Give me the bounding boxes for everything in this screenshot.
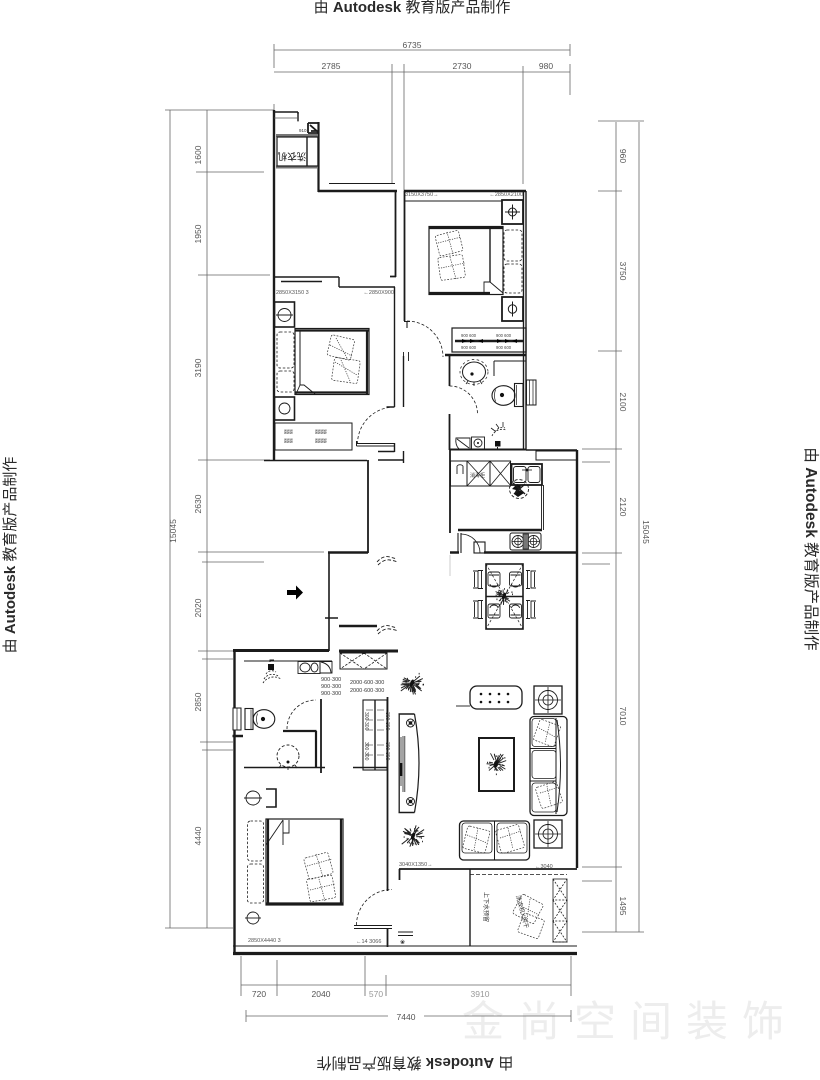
svg-text:ʬʬʬ: ʬʬʬ — [284, 439, 293, 445]
svg-text:3190: 3190 — [193, 358, 203, 377]
svg-text:金尚空间装饰: 金尚空间装饰 — [462, 998, 798, 1045]
svg-text:2000·600·300: 2000·600·300 — [350, 688, 384, 694]
svg-text:由 Autodesk 教育版产品制作: 由 Autodesk 教育版产品制作 — [317, 1054, 514, 1071]
svg-text:2785: 2785 — [322, 61, 341, 71]
svg-text:ʬʬʬʬ: ʬʬʬʬ — [315, 439, 327, 445]
svg-text:2020: 2020 — [193, 598, 203, 617]
svg-text:900 600: 900 600 — [461, 345, 477, 350]
svg-text:←3040: ←3040 — [535, 864, 553, 870]
svg-text:900 600: 900 600 — [461, 333, 477, 338]
svg-text:2730: 2730 — [453, 61, 472, 71]
svg-text:洗衣机: 洗衣机 — [277, 150, 306, 162]
svg-text:3750: 3750 — [618, 262, 628, 281]
svg-text:3150X3750→: 3150X3750→ — [405, 192, 439, 198]
svg-text:900·300: 900·300 — [321, 684, 341, 690]
svg-text:7440: 7440 — [397, 1012, 416, 1022]
svg-text:980: 980 — [539, 61, 553, 71]
svg-text:←2850X900: ←2850X900 — [363, 290, 394, 296]
svg-text:300·300: 300·300 — [384, 742, 390, 761]
svg-text:2630: 2630 — [193, 494, 203, 513]
svg-text:300·300: 300·300 — [363, 712, 369, 731]
svg-text:910: 910 — [299, 128, 307, 133]
svg-text:720: 720 — [252, 989, 266, 999]
svg-text:7010: 7010 — [618, 707, 628, 726]
svg-text:6735: 6735 — [403, 40, 422, 50]
svg-text:900 600: 900 600 — [496, 345, 512, 350]
svg-text:4440: 4440 — [193, 826, 203, 845]
svg-text:3910: 3910 — [471, 989, 490, 999]
svg-text:15045: 15045 — [168, 519, 178, 543]
svg-text:570: 570 — [369, 989, 383, 999]
svg-text:15045: 15045 — [641, 520, 651, 544]
svg-text:900 600: 900 600 — [496, 333, 512, 338]
svg-text:由 Autodesk 教育版产品制作: 由 Autodesk 教育版产品制作 — [2, 457, 19, 654]
svg-text:900·300: 900·300 — [321, 691, 341, 697]
svg-text:2100: 2100 — [618, 393, 628, 412]
svg-text:❀: ❀ — [400, 939, 405, 946]
svg-text:1950: 1950 — [193, 224, 203, 243]
svg-text:由 Autodesk 教育版产品制作: 由 Autodesk 教育版产品制作 — [802, 447, 820, 650]
svg-text:2850X3150 3: 2850X3150 3 — [276, 290, 309, 296]
svg-text:2120: 2120 — [618, 498, 628, 517]
svg-text:2850X4440 3: 2850X4440 3 — [248, 938, 281, 944]
svg-text:960: 960 — [618, 149, 628, 163]
svg-text:2040: 2040 — [312, 989, 331, 999]
svg-text:3040X1350→: 3040X1350→ — [399, 862, 433, 868]
svg-text:由 Autodesk 教育版产品制作: 由 Autodesk 教育版产品制作 — [314, 0, 511, 16]
svg-text:1600: 1600 — [193, 145, 203, 164]
svg-text:2850: 2850 — [193, 692, 203, 711]
svg-text:1495: 1495 — [618, 897, 628, 916]
svg-text:300·300: 300·300 — [384, 712, 390, 731]
svg-text:消毒柜: 消毒柜 — [470, 472, 485, 479]
svg-text:2000·600·300: 2000·600·300 — [350, 680, 384, 686]
svg-text:ʬʬʬ: ʬʬʬ — [284, 430, 293, 436]
svg-text:上下水预留: 上下水预留 — [482, 892, 490, 922]
svg-text:←14 3066: ←14 3066 — [356, 939, 381, 945]
svg-text:←2850X2100: ←2850X2100 — [489, 192, 523, 198]
svg-text:ʬʬʬʬ: ʬʬʬʬ — [315, 430, 327, 436]
svg-text:900·300: 900·300 — [321, 677, 341, 683]
